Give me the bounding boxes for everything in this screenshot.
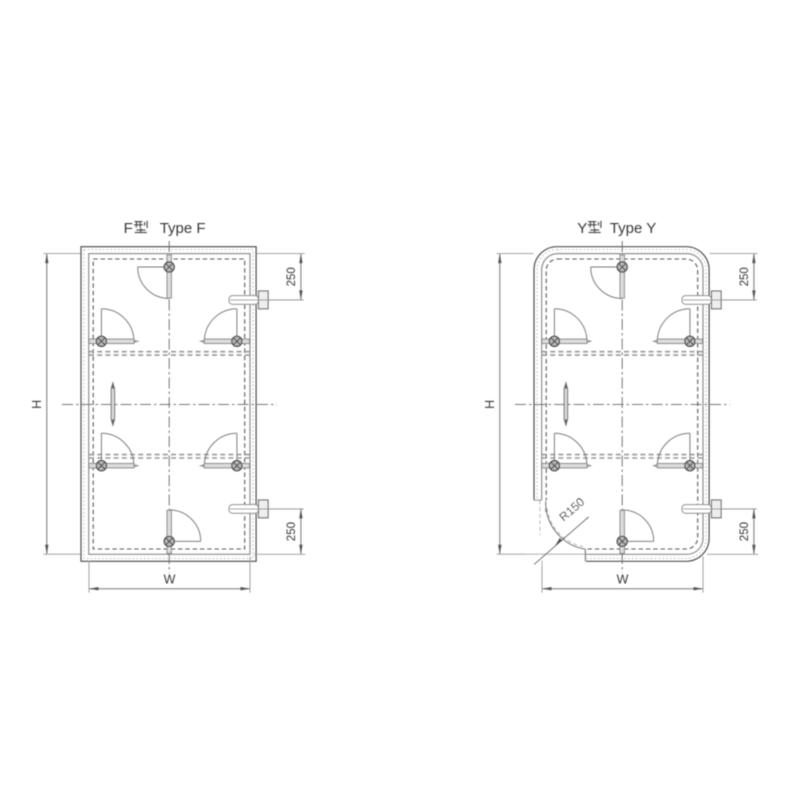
- svg-text:W: W: [164, 572, 176, 586]
- svg-text:250: 250: [286, 267, 298, 286]
- svg-text:250: 250: [739, 522, 751, 541]
- svg-text:Y: Y: [577, 220, 587, 237]
- svg-text:H: H: [30, 400, 44, 409]
- svg-text:H: H: [483, 400, 497, 409]
- svg-text:W: W: [617, 572, 629, 586]
- svg-text:250: 250: [286, 522, 298, 541]
- svg-text:Type Y: Type Y: [610, 220, 656, 237]
- svg-text:F: F: [124, 220, 133, 237]
- svg-text:250: 250: [739, 267, 751, 286]
- svg-text:Type F: Type F: [160, 220, 206, 237]
